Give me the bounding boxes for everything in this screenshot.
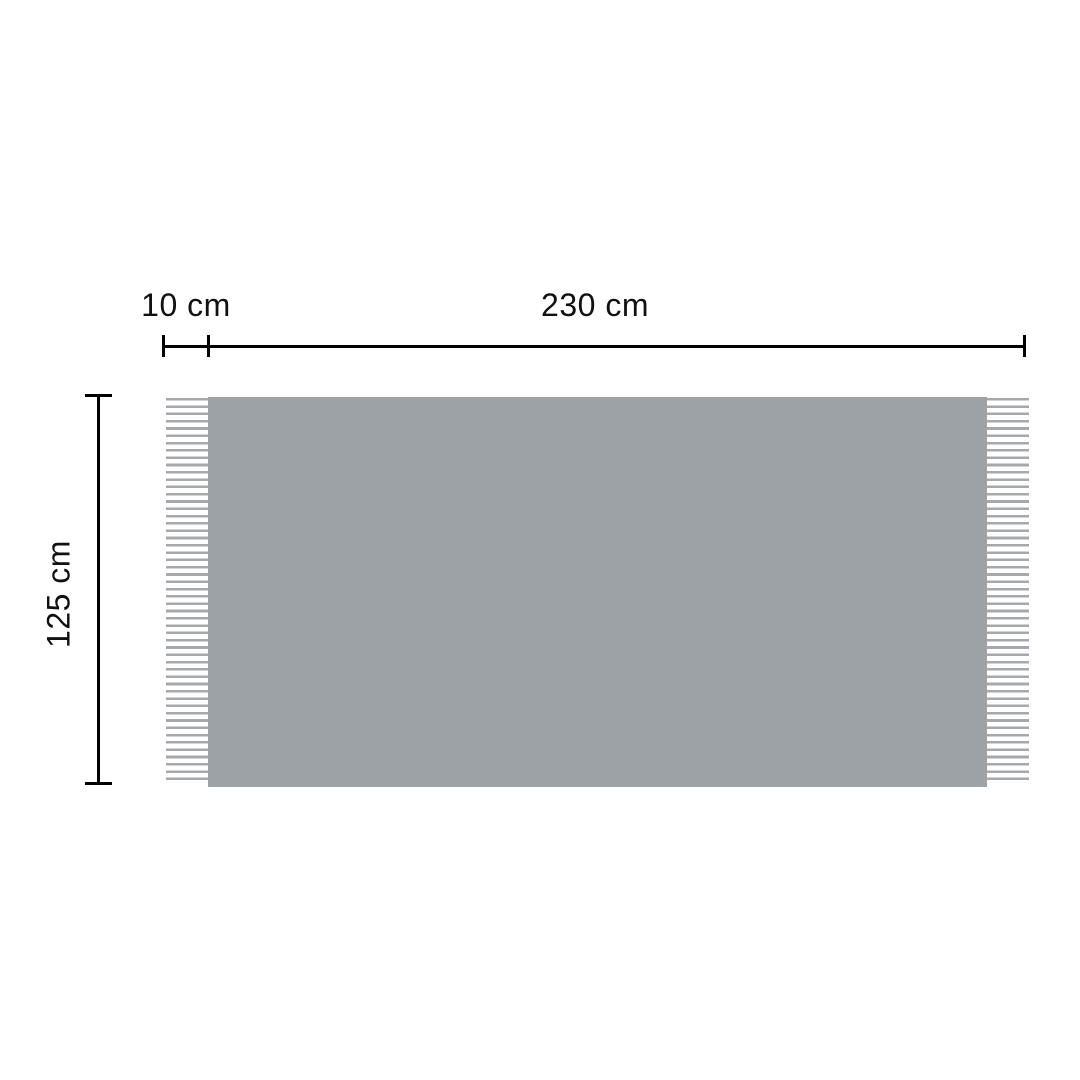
height-dimension-line: [97, 395, 100, 784]
width-dimension-line: [163, 345, 1026, 348]
blanket-fringe-right: [987, 398, 1029, 785]
blanket-fabric: [208, 397, 987, 787]
width-dimension-tick-right: [1023, 335, 1026, 357]
height-dimension-tick-bottom: [85, 782, 112, 785]
blanket-fringe-left: [166, 398, 208, 785]
width-label: 230 cm: [541, 287, 649, 324]
fringe-dimension-tick: [207, 335, 210, 357]
product-dimension-diagram: 10 cm 230 cm 125 cm: [0, 0, 1080, 1080]
width-dimension-tick-left: [162, 335, 165, 357]
height-dimension-tick-top: [85, 394, 112, 397]
height-label: 125 cm: [41, 540, 78, 648]
fringe-length-label: 10 cm: [141, 287, 231, 324]
